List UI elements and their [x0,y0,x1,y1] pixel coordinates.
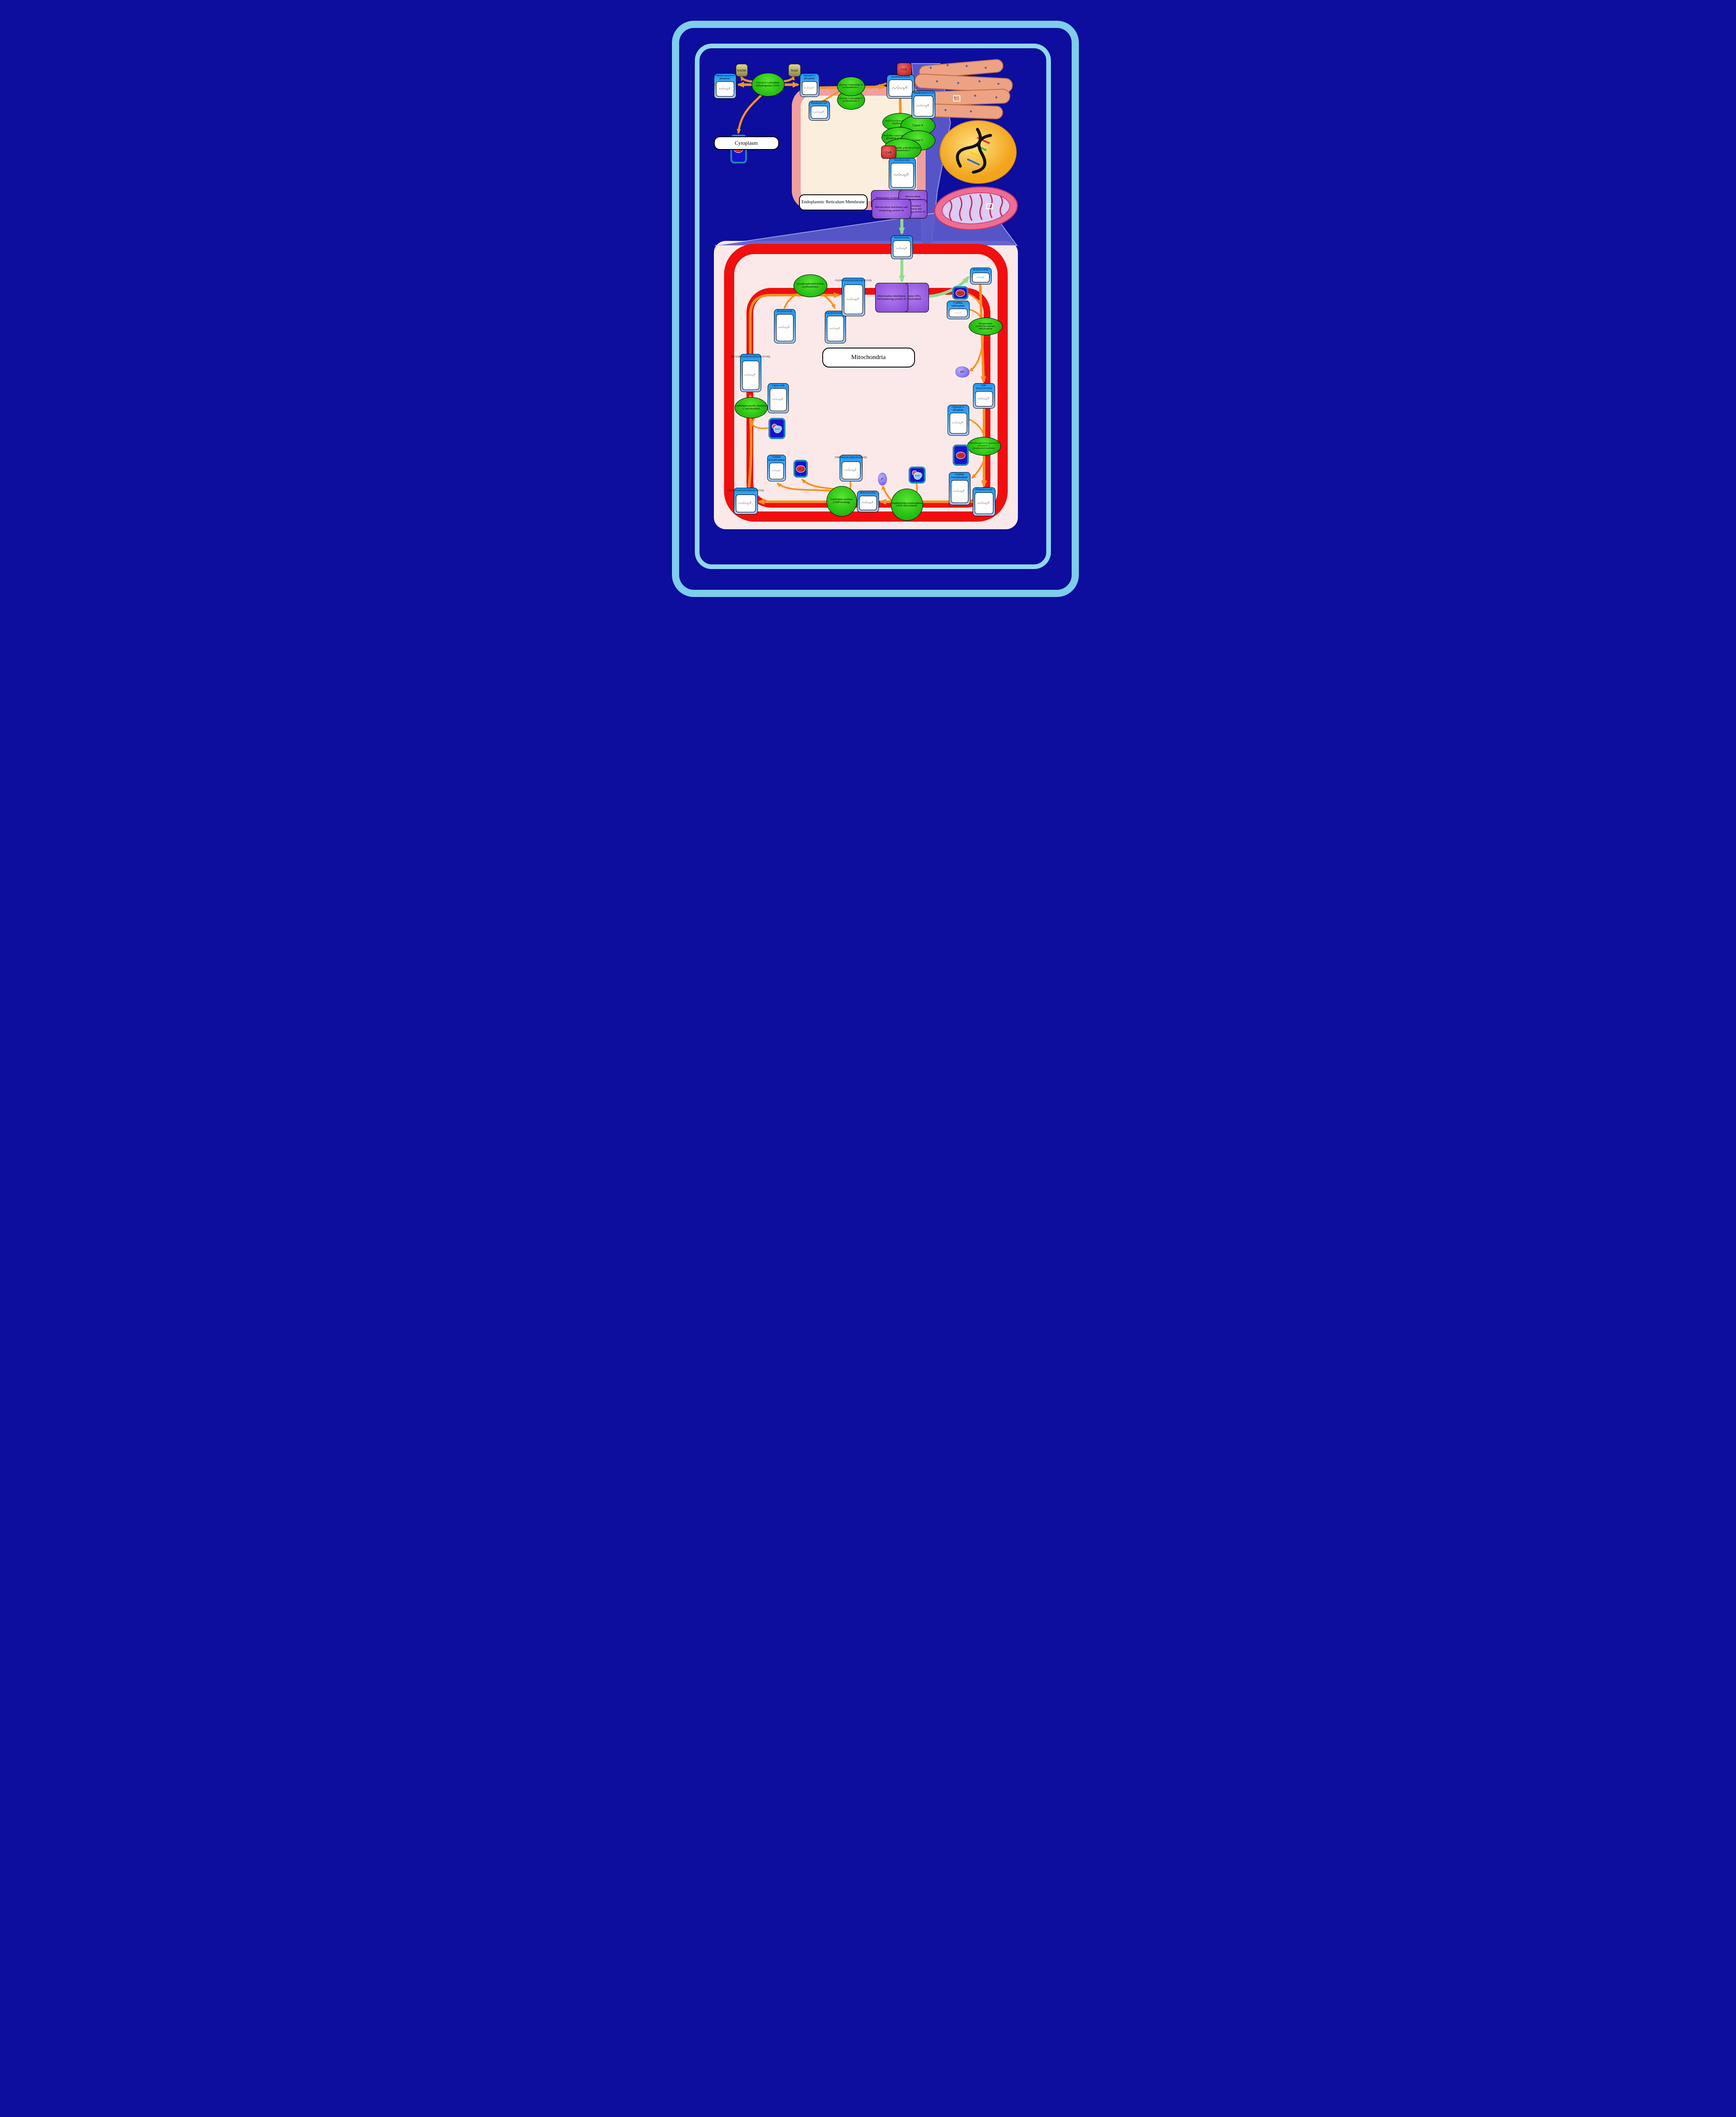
enzyme-gpat1[interactable]: Glycerol-3-phosphate O-acyltransferase 1 [837,77,865,96]
structure-image [975,492,993,514]
enzyme-gep4[interactable]: Phosphatidylglycerophosphatase GEP4, mit… [891,489,923,521]
enzyme-cdppt[interactable]: CDP-diacylglycerol--glycerol-3-phosphate… [967,437,1001,456]
structure-image [844,285,863,314]
node-dhap[interactable]: Dihydroxyacetone phosphate [714,73,736,99]
node-nad[interactable]: NAD [788,64,801,77]
structure-image [769,463,784,479]
structure-image [949,309,968,317]
proton-icon: H+ [956,290,965,297]
structure-image [742,361,759,390]
node-g3p[interactable]: Glycerol 3-phosphate [800,73,819,97]
node-pa-er[interactable]: PA(10:0/14:0) [889,158,916,190]
node-tetradecanoyl-coa[interactable]: Tetradecanoyl-CoA [912,91,935,119]
structure-image [975,391,993,406]
arrow-gpd2-h [738,91,765,133]
node-pg[interactable]: PG(10:0/14:0) [857,491,879,512]
pathway-canvas: Glycerol-3-phosphate dehydrogenase GPD2 … [651,0,1085,603]
proton-icon: H+ [956,452,965,459]
node-pc[interactable]: PC(10:0/10:0) [774,309,796,343]
enzyme-clsyn[interactable]: Cardiolipin synthase (CMP-forming) [827,486,857,517]
structure-image [776,314,793,341]
node-ppi[interactable]: PPi [955,366,970,378]
protein-mdm35[interactable]: Mitochondrial distribution and morpholog… [875,283,908,312]
node-nadh[interactable]: NADH [736,64,748,77]
arrow-to-ppi [970,345,982,371]
protein-mdm34[interactable]: Mitochondrial distribution and morpholog… [872,199,911,219]
node-ctp[interactable]: Cytidine triphosphate [947,301,970,319]
structure-image [827,316,844,341]
enzyme-gpd2[interactable]: Glycerol-3-phosphate dehydrogenase GPD2 [752,73,785,97]
node-pa-right[interactable]: PA(10:0/14:0) [970,268,992,285]
arrow-to-cmpright [972,461,984,478]
structure-image [802,81,817,95]
node-lysopc[interactable]: LysoPC(10:0/0:0) [825,311,846,343]
enzyme-pcyt[interactable]: Phosphatidate cytidylyltransferase, mito… [969,318,1003,335]
structure-image [889,80,912,97]
label-cytoplasm: Cytoplasm [714,136,779,150]
node-mlcl[interactable]: MLCL(0:0/14:0/18:1(9Z)/20:1(11Z)) [740,354,761,392]
water-icon: H2O [912,470,923,480]
node-h-right2[interactable]: H+ [953,445,969,466]
node-h-right1[interactable]: H+ [952,286,968,300]
node-cmp-left[interactable]: Cytidine monophosphate [767,455,786,481]
structure-image [893,240,911,257]
arrow-to-pi [883,486,891,500]
node-cdp-dg2[interactable]: CDP-DG(18:1(9Z)/20:1(11Z)) [840,455,862,481]
node-capric-acid[interactable]: Capric acid [768,383,789,413]
node-coa-2[interactable]: CoA [881,146,896,159]
node-g3p-right[interactable]: Glycerol 3-phosphate [948,405,969,436]
node-cl-top[interactable]: CL(10:0/14:0/18:1(9Z)/20:1(11Z)) [842,278,865,316]
node-coa-1[interactable]: CoA [897,63,912,76]
structure-image [811,106,828,119]
structure-image [770,388,787,411]
node-cl-bottom[interactable]: CL(10:0/14:0/18:1(9Z)/20:1(11Z)) [734,488,758,514]
structure-image [914,96,933,116]
structure-image [950,413,967,434]
node-cmp-right[interactable]: Cytidine monophosphate [949,472,970,505]
structure-image [859,496,877,510]
node-h-left[interactable]: H+ [793,460,808,478]
arrow-h2oleft-join [751,423,768,428]
proton-icon: H+ [796,465,805,473]
node-h2o-left[interactable]: H2O [768,418,785,439]
node-h2o-bottom[interactable]: H2O [909,467,926,484]
arrow-g3pright-join [970,420,984,434]
structure-image [842,462,860,479]
node-cdp-dg1[interactable]: CDP-DG(10:0/14:0) [973,383,995,409]
enzyme-lpcat[interactable]: Lysophosphatidylcholine acyltransferase [793,274,827,297]
arrow-h-join1 [968,294,980,305]
structure-image [951,480,968,503]
structure-image [891,163,914,188]
label-mitochondria: Mitochondria [822,348,915,368]
structure-image [972,273,990,282]
arrow-ctp-join [970,310,981,319]
node-lysopa[interactable]: LysoPA(10:0/0:0) [887,75,915,99]
water-icon: H2O [771,423,782,434]
structure-image [736,495,756,512]
label-er-membrane: Endoplasmic Reticulum Membrane [799,194,868,210]
structure-image [716,81,734,97]
node-pgp[interactable]: PGP(10:0/14:0) [973,487,995,516]
node-pi[interactable]: Pi [877,472,887,486]
node-pa-mid[interactable]: PA(10:0/14:0) [891,235,913,259]
node-decanoyl-coa[interactable]: Decanoyl-CoA [809,101,830,121]
enzyme-cld1[interactable]: Cardiolipin-specific deacylase 1, mitoch… [735,397,768,418]
